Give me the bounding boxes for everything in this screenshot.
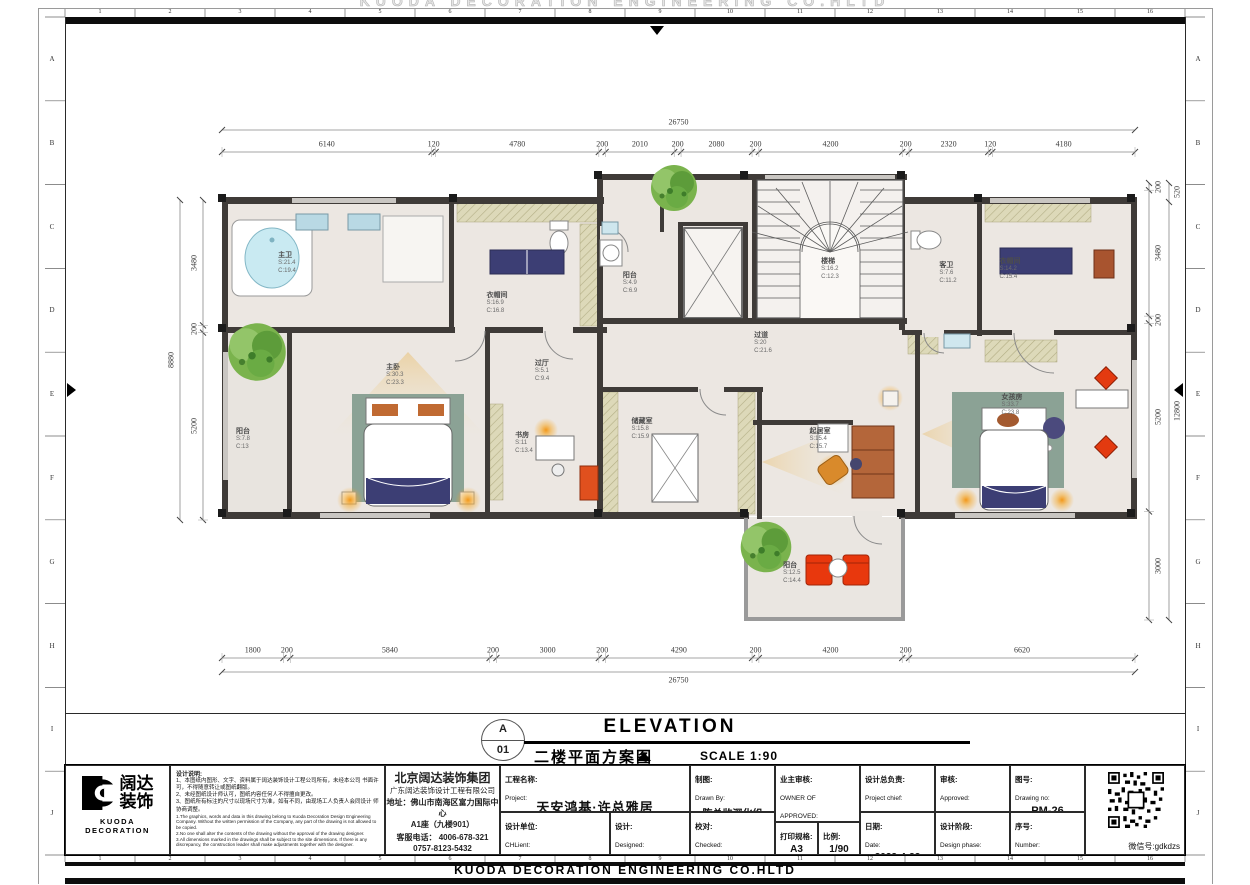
project-label-cn: 工程名称: — [505, 775, 538, 784]
footer-company-text: KUODA DECORATION ENGINEERING CO.HLTD — [65, 863, 1185, 877]
drawing-no-value: PM-26 — [1015, 805, 1080, 812]
note-en-3: 3.All dimensions marked in the drawings … — [176, 837, 379, 848]
detail-letter: A — [499, 720, 507, 735]
logo-text-2: 装饰 — [120, 793, 154, 811]
note-en-1: 1.The graphics, words and data in this d… — [176, 814, 379, 831]
owner-label-cn: 业主审核: — [780, 775, 813, 784]
designed-cell: 设计: Designed: 陈总监设计组 — [610, 812, 690, 855]
drawing-no-label-en: Drawing no: — [1015, 795, 1050, 802]
drawn-value: 陈总监深化组 — [695, 805, 770, 812]
master-bed-icon — [337, 394, 481, 513]
note-en-2: 2.No one shall alter the contents of the… — [176, 831, 379, 837]
drawn-by-cell: 制图: Drawn By: 陈总监深化组 — [690, 765, 775, 812]
designed-label-en: Designed: — [615, 842, 644, 849]
approved-cell: 审核: Approved: — [935, 765, 1010, 812]
checked-value: 陈总监设计组 — [695, 852, 770, 855]
chief-label-cn: 设计总负责: — [865, 775, 905, 784]
print-size-cell: 打印规格: A3 — [775, 822, 818, 855]
drawing-scale: SCALE 1:90 — [700, 749, 778, 763]
detail-marker: A 01 — [481, 719, 525, 761]
date-label-en: Date: — [865, 842, 881, 849]
title-strip-divider — [65, 713, 1185, 714]
company-cell: 北京阔达装饰集团 广东阔达装饰设计工程有限公司 地址：佛山市南海区富力国际中心 … — [385, 765, 500, 855]
bottom-border-bar-2 — [65, 878, 1185, 884]
company-sub: 广东阔达装饰设计工程有限公司 — [386, 786, 499, 796]
outer-border-left — [38, 8, 39, 884]
ratio-value: 1/90 — [823, 844, 855, 855]
note-cn-3: 3、图纸所有标注的尺寸以现场尺寸为准，如有不同，由现场工人负责人会同设计 师协商… — [176, 799, 379, 813]
company-tel-2: 0757-8123-5432 — [386, 844, 499, 855]
elevator-icon — [684, 228, 742, 318]
notes-title: 设计说明: — [176, 769, 379, 778]
checked-cell: 校对: Checked: 陈总监设计组 — [690, 812, 775, 855]
cloakroom-rug — [490, 250, 564, 274]
bathtub-icon — [232, 220, 312, 296]
detail-number: 01 — [497, 745, 509, 760]
logo-text-en: KUODA DECORATION — [66, 817, 169, 835]
project-label-en: Project: — [505, 795, 527, 802]
drawing-title-en: ELEVATION — [540, 716, 800, 738]
design-phase-cell: 设计阶段: Design phase: 毛坯新房 — [935, 812, 1010, 855]
unit-value: 北京阔达·巢艺设计院 — [505, 852, 605, 855]
drawing-no-label-cn: 图号: — [1015, 775, 1033, 784]
approved-label-cn: 审核: — [940, 775, 958, 784]
owner-cell: 业主审核: OWNER OF APPROVED: — [775, 765, 860, 822]
outer-border-right — [1212, 8, 1213, 884]
design-notes-cell: 设计说明: 1、本图纸内图形、文字、资料属于阔达装饰设计工程公司所有，未经本公司… — [170, 765, 385, 855]
ratio-label: 比例: — [823, 832, 841, 841]
project-chief-cell: 设计总负责: Project chief: — [860, 765, 935, 812]
designed-value: 陈总监设计组 — [615, 852, 685, 855]
frame-left — [65, 17, 66, 855]
project-value: 天安鸿基·许总雅居 — [505, 797, 685, 812]
phase-label-cn: 设计阶段: — [940, 822, 973, 831]
qr-cell: 微信号:gdkdzs — [1085, 765, 1185, 855]
logo-text-1: 阔达 — [120, 775, 154, 793]
detail-divider — [482, 740, 524, 741]
company-group: 北京阔达装饰集团 — [386, 770, 499, 786]
note-cn-1: 1、本图纸内图形、文字、资料属于阔达装饰设计工程公司所有，未经本公司 书面许可，… — [176, 778, 379, 792]
drawn-label-cn: 制图: — [695, 775, 713, 784]
shower-icon — [383, 216, 443, 282]
checked-label-cn: 校对: — [695, 822, 713, 831]
unit-label-cn: 设计单位: — [505, 822, 538, 831]
company-tel-1: 客服电话： 4006-678-321 — [386, 833, 499, 844]
phase-value: 毛坯新房 — [940, 852, 1005, 855]
date-cell: 日期: Date: 2022-4-22 — [860, 812, 935, 855]
logo-cell: 阔达 装饰 KUODA DECORATION — [65, 765, 170, 855]
approved-label-en: Approved: — [940, 795, 970, 802]
date-value: 2022-4-22 — [865, 852, 930, 855]
frame-right — [1185, 17, 1186, 855]
number-label-cn: 序号: — [1015, 822, 1033, 831]
top-border-bar — [65, 17, 1185, 24]
right-cloakroom — [1000, 248, 1114, 278]
chief-label-en: Project chief: — [865, 795, 903, 802]
checked-label-en: Checked: — [695, 842, 722, 849]
wechat-qr-code — [1108, 772, 1164, 828]
company-addr-2: A1座（九楼901） — [386, 820, 499, 831]
owner-label-en: OWNER OF APPROVED: — [780, 795, 818, 820]
center-mark-top — [650, 26, 664, 35]
drawn-label-en: Drawn By: — [695, 795, 725, 802]
drawing-no-cell: 图号: Drawing no: PM-26 — [1010, 765, 1085, 812]
print-value: A3 — [780, 844, 813, 855]
project-cell: 工程名称: Project: 天安鸿基·许总雅居 — [500, 765, 690, 812]
unit-label-en: CHLient: — [505, 842, 530, 849]
designed-label-cn: 设计: — [615, 822, 633, 831]
design-unit-cell: 设计单位: CHLient: 北京阔达·巢艺设计院 — [500, 812, 610, 855]
phase-label-en: Design phase: — [940, 842, 982, 849]
outer-border-top — [38, 8, 1212, 9]
number-cell: 序号: Number: — [1010, 812, 1085, 855]
date-label-cn: 日期: — [865, 822, 883, 831]
storage-shelf-icon — [652, 434, 698, 502]
kuoda-logo-icon — [82, 774, 116, 812]
stairs-icon — [752, 180, 908, 318]
company-addr-1: 地址：佛山市南海区富力国际中心 — [386, 798, 499, 820]
center-mark-left — [67, 383, 76, 397]
center-mark-right — [1174, 383, 1183, 397]
ratio-cell: 比例: 1/90 — [818, 822, 860, 855]
center-mark-title — [637, 752, 651, 761]
wechat-id: 微信号:gdkdzs — [1128, 841, 1180, 852]
print-label: 打印规格: — [780, 832, 813, 841]
drawing-sheet: KUODA DECORATION ENGINEERING CO.HLTD A 0… — [0, 0, 1250, 885]
number-label-en: Number: — [1015, 842, 1040, 849]
title-rule — [524, 741, 970, 744]
